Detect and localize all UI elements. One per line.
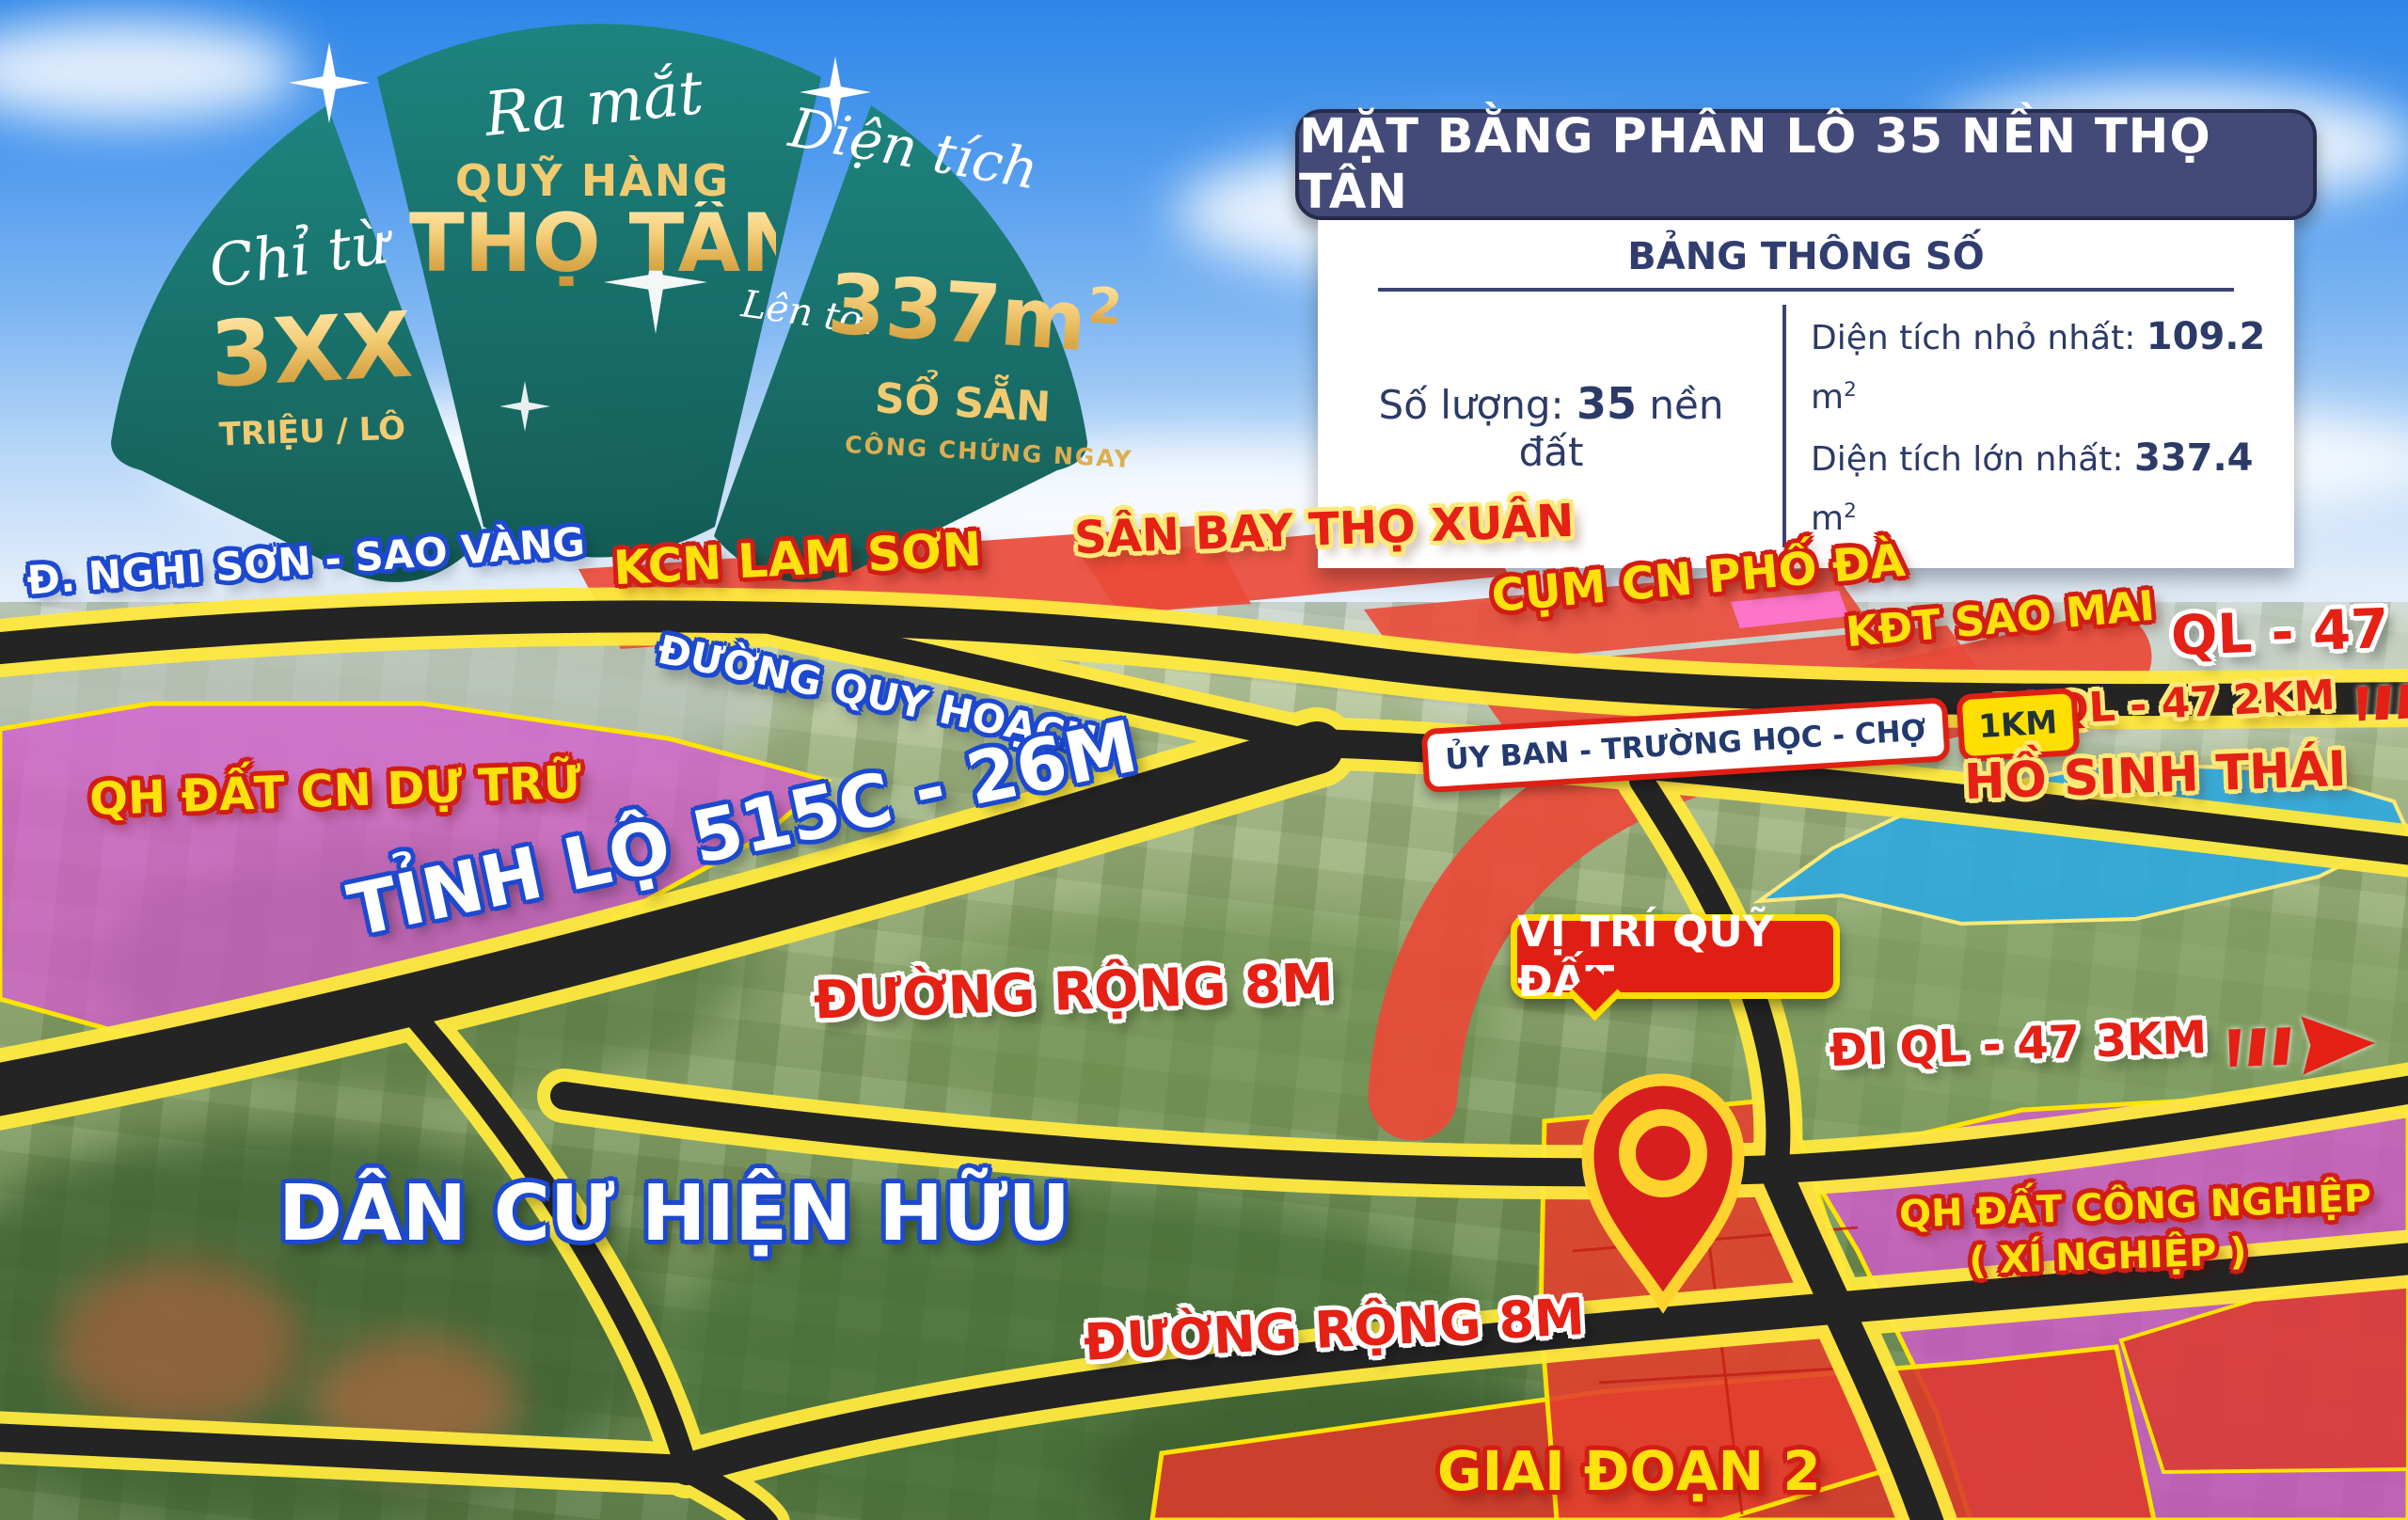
fan-area-note1: SỔ SẴN [874,377,1052,430]
site-location-badge: VỊ TRÍ QUỸ ĐẤT [1511,914,1840,999]
divider [1782,305,1786,547]
label-qh-dat-cong-nghiep: QH ĐẤT CÔNG NGHIỆP ( XÍ NGHIỆP ) [1898,1176,2315,1288]
min-area-unit: m2 [1811,378,1857,417]
max-area-label: Diện tích lớn nhất: [1811,440,2124,479]
direction-arrow-icon [2228,1013,2376,1076]
max-area-row: Diện tích lớn nhất: 337.4 m2 [1811,426,2268,547]
info-panel-title: MẶT BẰNG PHÂN LÔ 35 NỀN THỌ TÂN [1295,109,2317,220]
info-panel-subtitle: BẢNG THÔNG SỐ [1344,235,2268,278]
direction-arrow-icon [2356,671,2408,730]
fan-area-value: 337m2 [825,261,1124,368]
label-ho-sinh-thai: HỒ SINH THÁI [1963,744,2347,809]
fan-price-value: 3XX [182,296,441,404]
min-area-label: Diện tích nhỏ nhất: [1811,319,2135,357]
site-location-label: VỊ TRÍ QUỸ ĐẤT [1517,907,1833,1006]
lot-quantity: Số lượng: 35 nền đất [1344,378,1758,475]
min-area-value: 109.2 [2147,315,2266,358]
max-area-value: 337.4 [2134,436,2254,480]
fan-fund-line2: THỌ TÂN [409,201,776,286]
fan-area-value-number: 337m [825,255,1090,370]
area-stats: Diện tích nhỏ nhất: 109.2 m2 Diện tích l… [1811,305,2268,547]
lot-quantity-value: 35 [1576,378,1637,429]
lot-quantity-label: Số lượng: [1379,382,1564,428]
min-area-row: Diện tích nhỏ nhất: 109.2 m2 [1811,305,2268,426]
label-dan-cu-hien-huu: DÂN CƯ HIỆN HỮU [278,1174,1070,1255]
fan-area-value-sup: 2 [1085,277,1124,336]
label-ql-47: QL - 47 [2170,600,2389,665]
max-area-unit: m2 [1811,499,1857,538]
divider [1378,288,2234,292]
label-giai-doan-2: GIAI ĐOẠN 2 [1437,1443,1821,1500]
real-estate-map-poster: Ra mắt QUỸ HÀNG THỌ TÂN Chỉ từ 3XX TRIỆU… [0,0,2408,1520]
